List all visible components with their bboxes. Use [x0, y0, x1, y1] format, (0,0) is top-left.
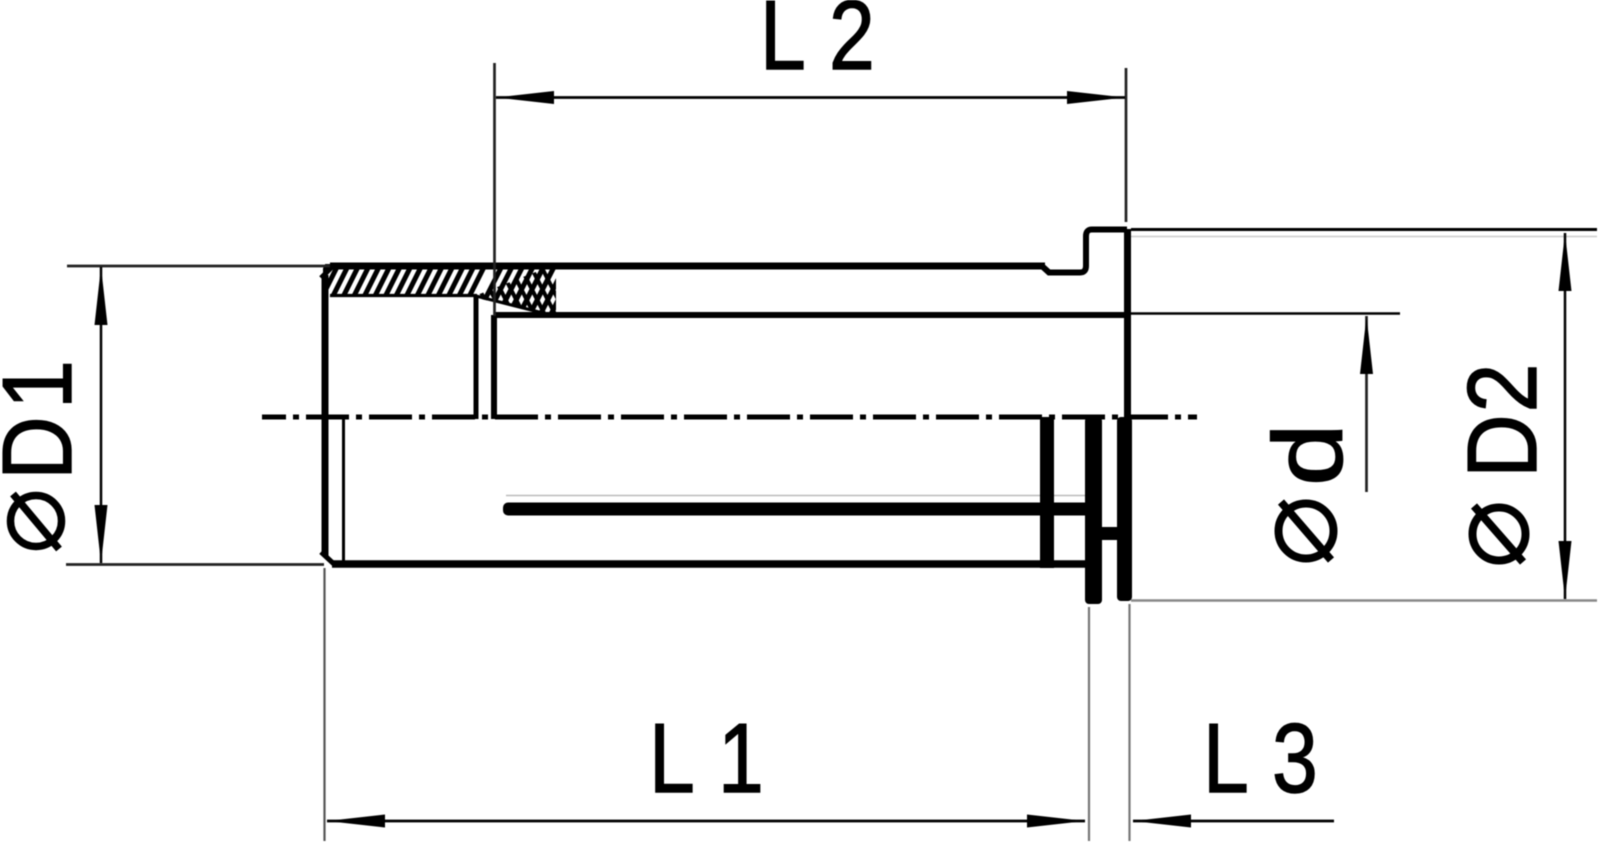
svg-text:L 2: L 2	[760, 0, 876, 91]
svg-text:D2: D2	[1448, 362, 1557, 478]
svg-text:D1: D1	[0, 353, 92, 480]
svg-text:d: d	[1254, 423, 1364, 486]
svg-text:L 1: L 1	[649, 704, 765, 813]
svg-text:L 3: L 3	[1203, 704, 1319, 813]
